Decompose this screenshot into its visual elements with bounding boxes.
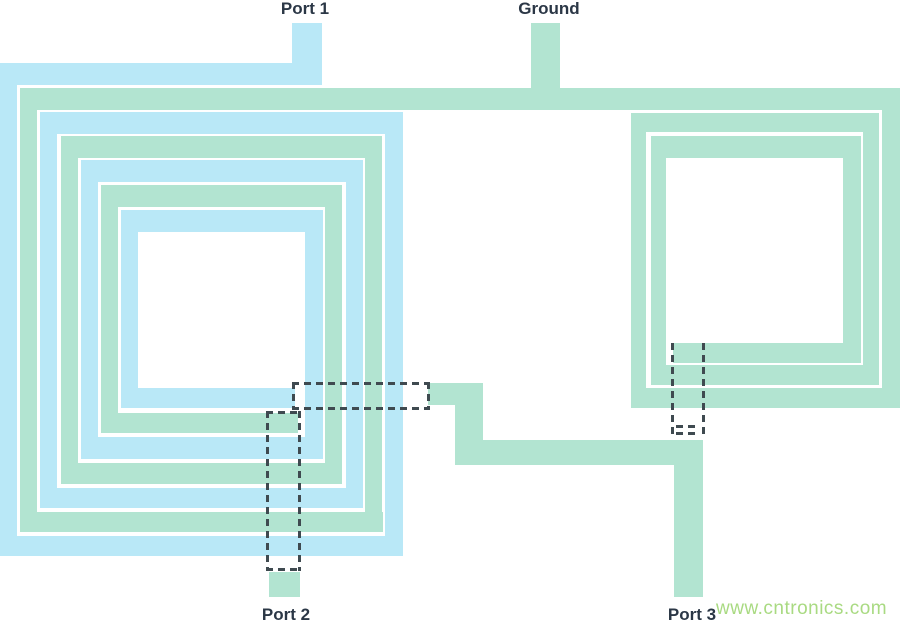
underpass1-top bbox=[292, 382, 429, 385]
green-top-long-trace bbox=[20, 88, 900, 110]
port1-label: Port 1 bbox=[281, 0, 329, 17]
spiral-inductor-layout-diagram: Port 1 Ground Port 2 Port 3 www.cntronic… bbox=[0, 0, 900, 625]
port2-stub bbox=[269, 572, 300, 597]
underpass1-right bbox=[427, 382, 430, 410]
watermark-text: www.cntronics.com bbox=[716, 599, 887, 618]
left-spiral-green-right-1 bbox=[365, 136, 382, 532]
underpass2-bottom bbox=[266, 568, 301, 571]
left-spiral-blue-top-3 bbox=[81, 160, 363, 182]
underpass1-left bbox=[292, 382, 295, 410]
port3-label: Port 3 bbox=[668, 606, 716, 623]
underpass2-top bbox=[266, 411, 301, 414]
left-spiral-blue-right-1 bbox=[385, 112, 403, 556]
left-spiral-blue-bottom-2 bbox=[40, 488, 363, 508]
underpass3-tick-1 bbox=[676, 425, 700, 428]
left-spiral-green-right-2 bbox=[325, 185, 342, 484]
left-spiral-blue-right-3 bbox=[305, 210, 323, 459]
port3-trace bbox=[674, 440, 703, 597]
left-spiral-blue-left-4 bbox=[121, 210, 138, 408]
left-spiral-green-bottom-1 bbox=[20, 512, 383, 532]
right-spiral-outer-left bbox=[631, 113, 646, 408]
left-spiral-blue-left-3 bbox=[81, 160, 98, 459]
ground-label: Ground bbox=[518, 0, 579, 17]
left-spiral-blue-left-2 bbox=[40, 112, 57, 508]
port1-stub bbox=[292, 23, 322, 64]
underpass3-right bbox=[702, 343, 705, 438]
left-spiral-blue-bottom-1 bbox=[0, 536, 403, 556]
underpass2-right bbox=[298, 411, 301, 571]
left-spiral-green-top-3 bbox=[101, 185, 342, 207]
right-spiral-ring1-left bbox=[651, 136, 666, 385]
right-spiral-ring1-top bbox=[631, 113, 879, 132]
left-spiral-green-left-1 bbox=[20, 88, 37, 532]
underpass3-tick-2 bbox=[676, 432, 700, 435]
right-spiral-ring1-right bbox=[863, 113, 879, 385]
right-spiral-ring1-bottom bbox=[651, 365, 879, 385]
ground-stub bbox=[531, 23, 560, 88]
port2-label: Port 2 bbox=[262, 606, 310, 623]
left-spiral-blue-right-2 bbox=[346, 160, 363, 508]
underpass1-bottom bbox=[292, 407, 429, 410]
left-spiral-blue-left-1 bbox=[0, 63, 17, 556]
left-spiral-blue-bottom-3 bbox=[81, 437, 323, 459]
left-spiral-green-top-2 bbox=[61, 136, 382, 158]
right-spiral-outer-right bbox=[882, 88, 900, 408]
left-spiral-green-left-3 bbox=[101, 185, 118, 433]
left-spiral-blue-bottom-4 bbox=[121, 388, 295, 408]
underpass3-left bbox=[671, 343, 674, 438]
left-spiral-blue-top-1 bbox=[0, 63, 322, 85]
right-spiral-ring2-top bbox=[651, 136, 861, 158]
left-spiral-blue-top-2 bbox=[40, 112, 403, 134]
connector-horizontal-lower bbox=[455, 440, 703, 465]
underpass2-left bbox=[266, 411, 269, 571]
left-spiral-blue-top-4 bbox=[121, 210, 323, 232]
left-spiral-green-left-2 bbox=[61, 136, 78, 484]
right-spiral-ring2-right bbox=[843, 136, 861, 363]
